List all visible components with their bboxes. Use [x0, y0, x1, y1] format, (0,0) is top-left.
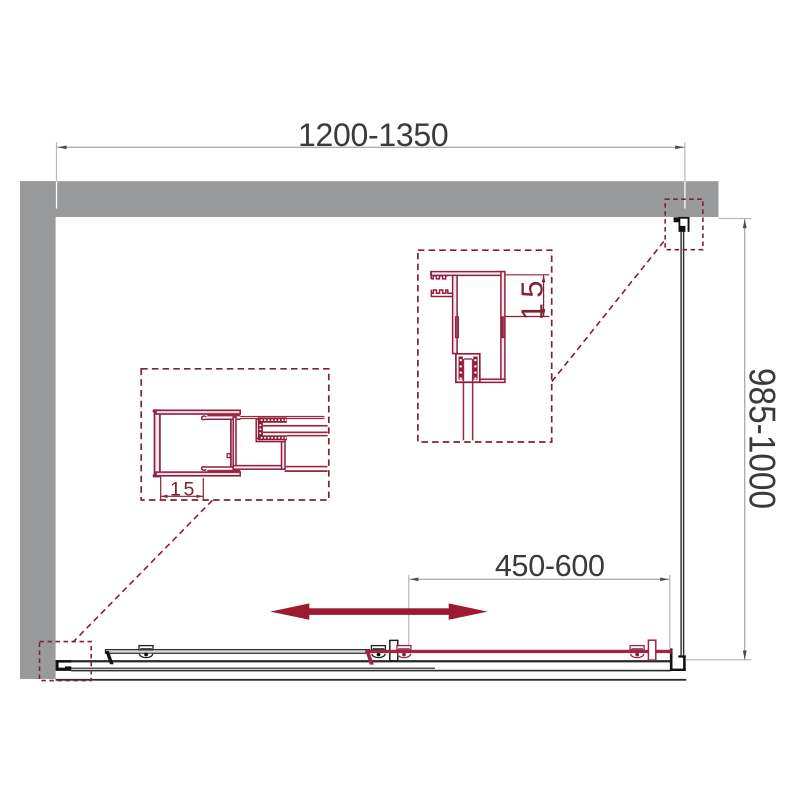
svg-text:15: 15 [170, 478, 197, 500]
svg-text:1200-1350: 1200-1350 [298, 117, 448, 153]
svg-text:15: 15 [514, 275, 549, 320]
svg-text:985-1000: 985-1000 [741, 368, 782, 509]
svg-text:450-600: 450-600 [495, 549, 605, 583]
